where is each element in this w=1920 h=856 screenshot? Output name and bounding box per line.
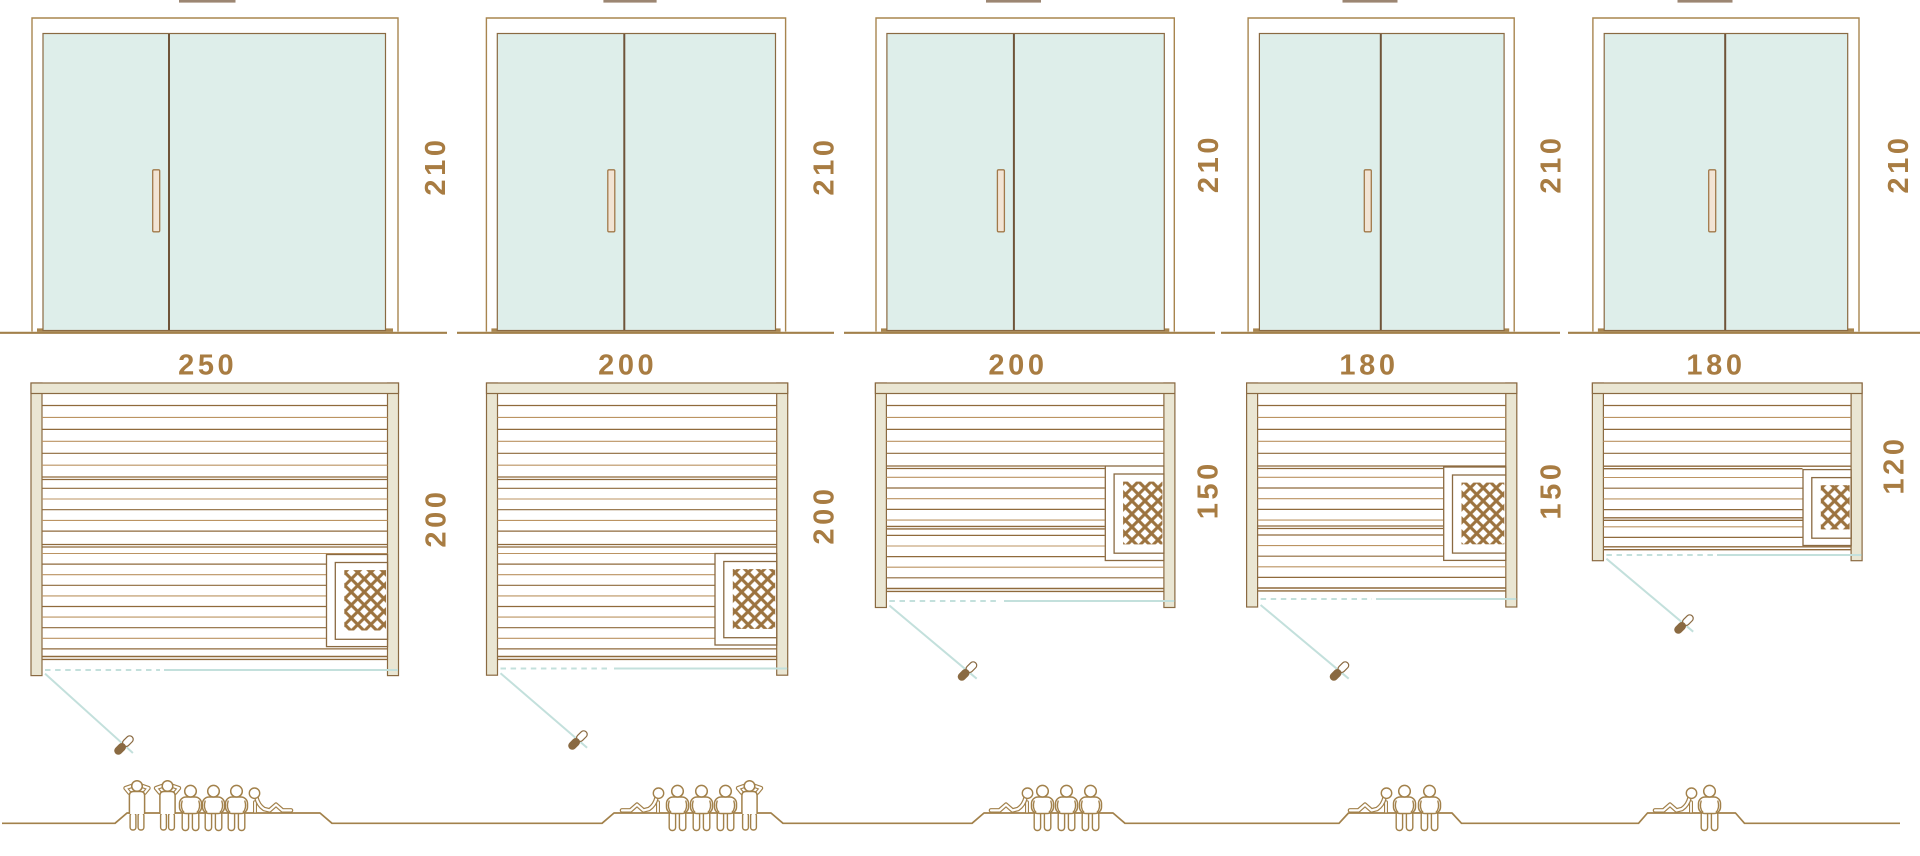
svg-text:150: 150 bbox=[1536, 460, 1568, 519]
svg-text:210: 210 bbox=[1536, 134, 1568, 193]
svg-text:200: 200 bbox=[420, 488, 452, 547]
svg-text:250: 250 bbox=[178, 350, 237, 382]
svg-text:150: 150 bbox=[1192, 460, 1224, 519]
svg-text:180: 180 bbox=[1686, 350, 1745, 382]
svg-text:200: 200 bbox=[808, 485, 840, 544]
svg-text:200: 200 bbox=[598, 350, 657, 382]
svg-text:210: 210 bbox=[420, 136, 452, 195]
svg-text:210: 210 bbox=[1193, 134, 1225, 193]
svg-text:210: 210 bbox=[809, 136, 841, 195]
svg-text:210: 210 bbox=[1883, 134, 1915, 193]
svg-text:200: 200 bbox=[988, 350, 1047, 382]
svg-text:120: 120 bbox=[1879, 435, 1911, 494]
svg-text:180: 180 bbox=[1339, 350, 1398, 382]
